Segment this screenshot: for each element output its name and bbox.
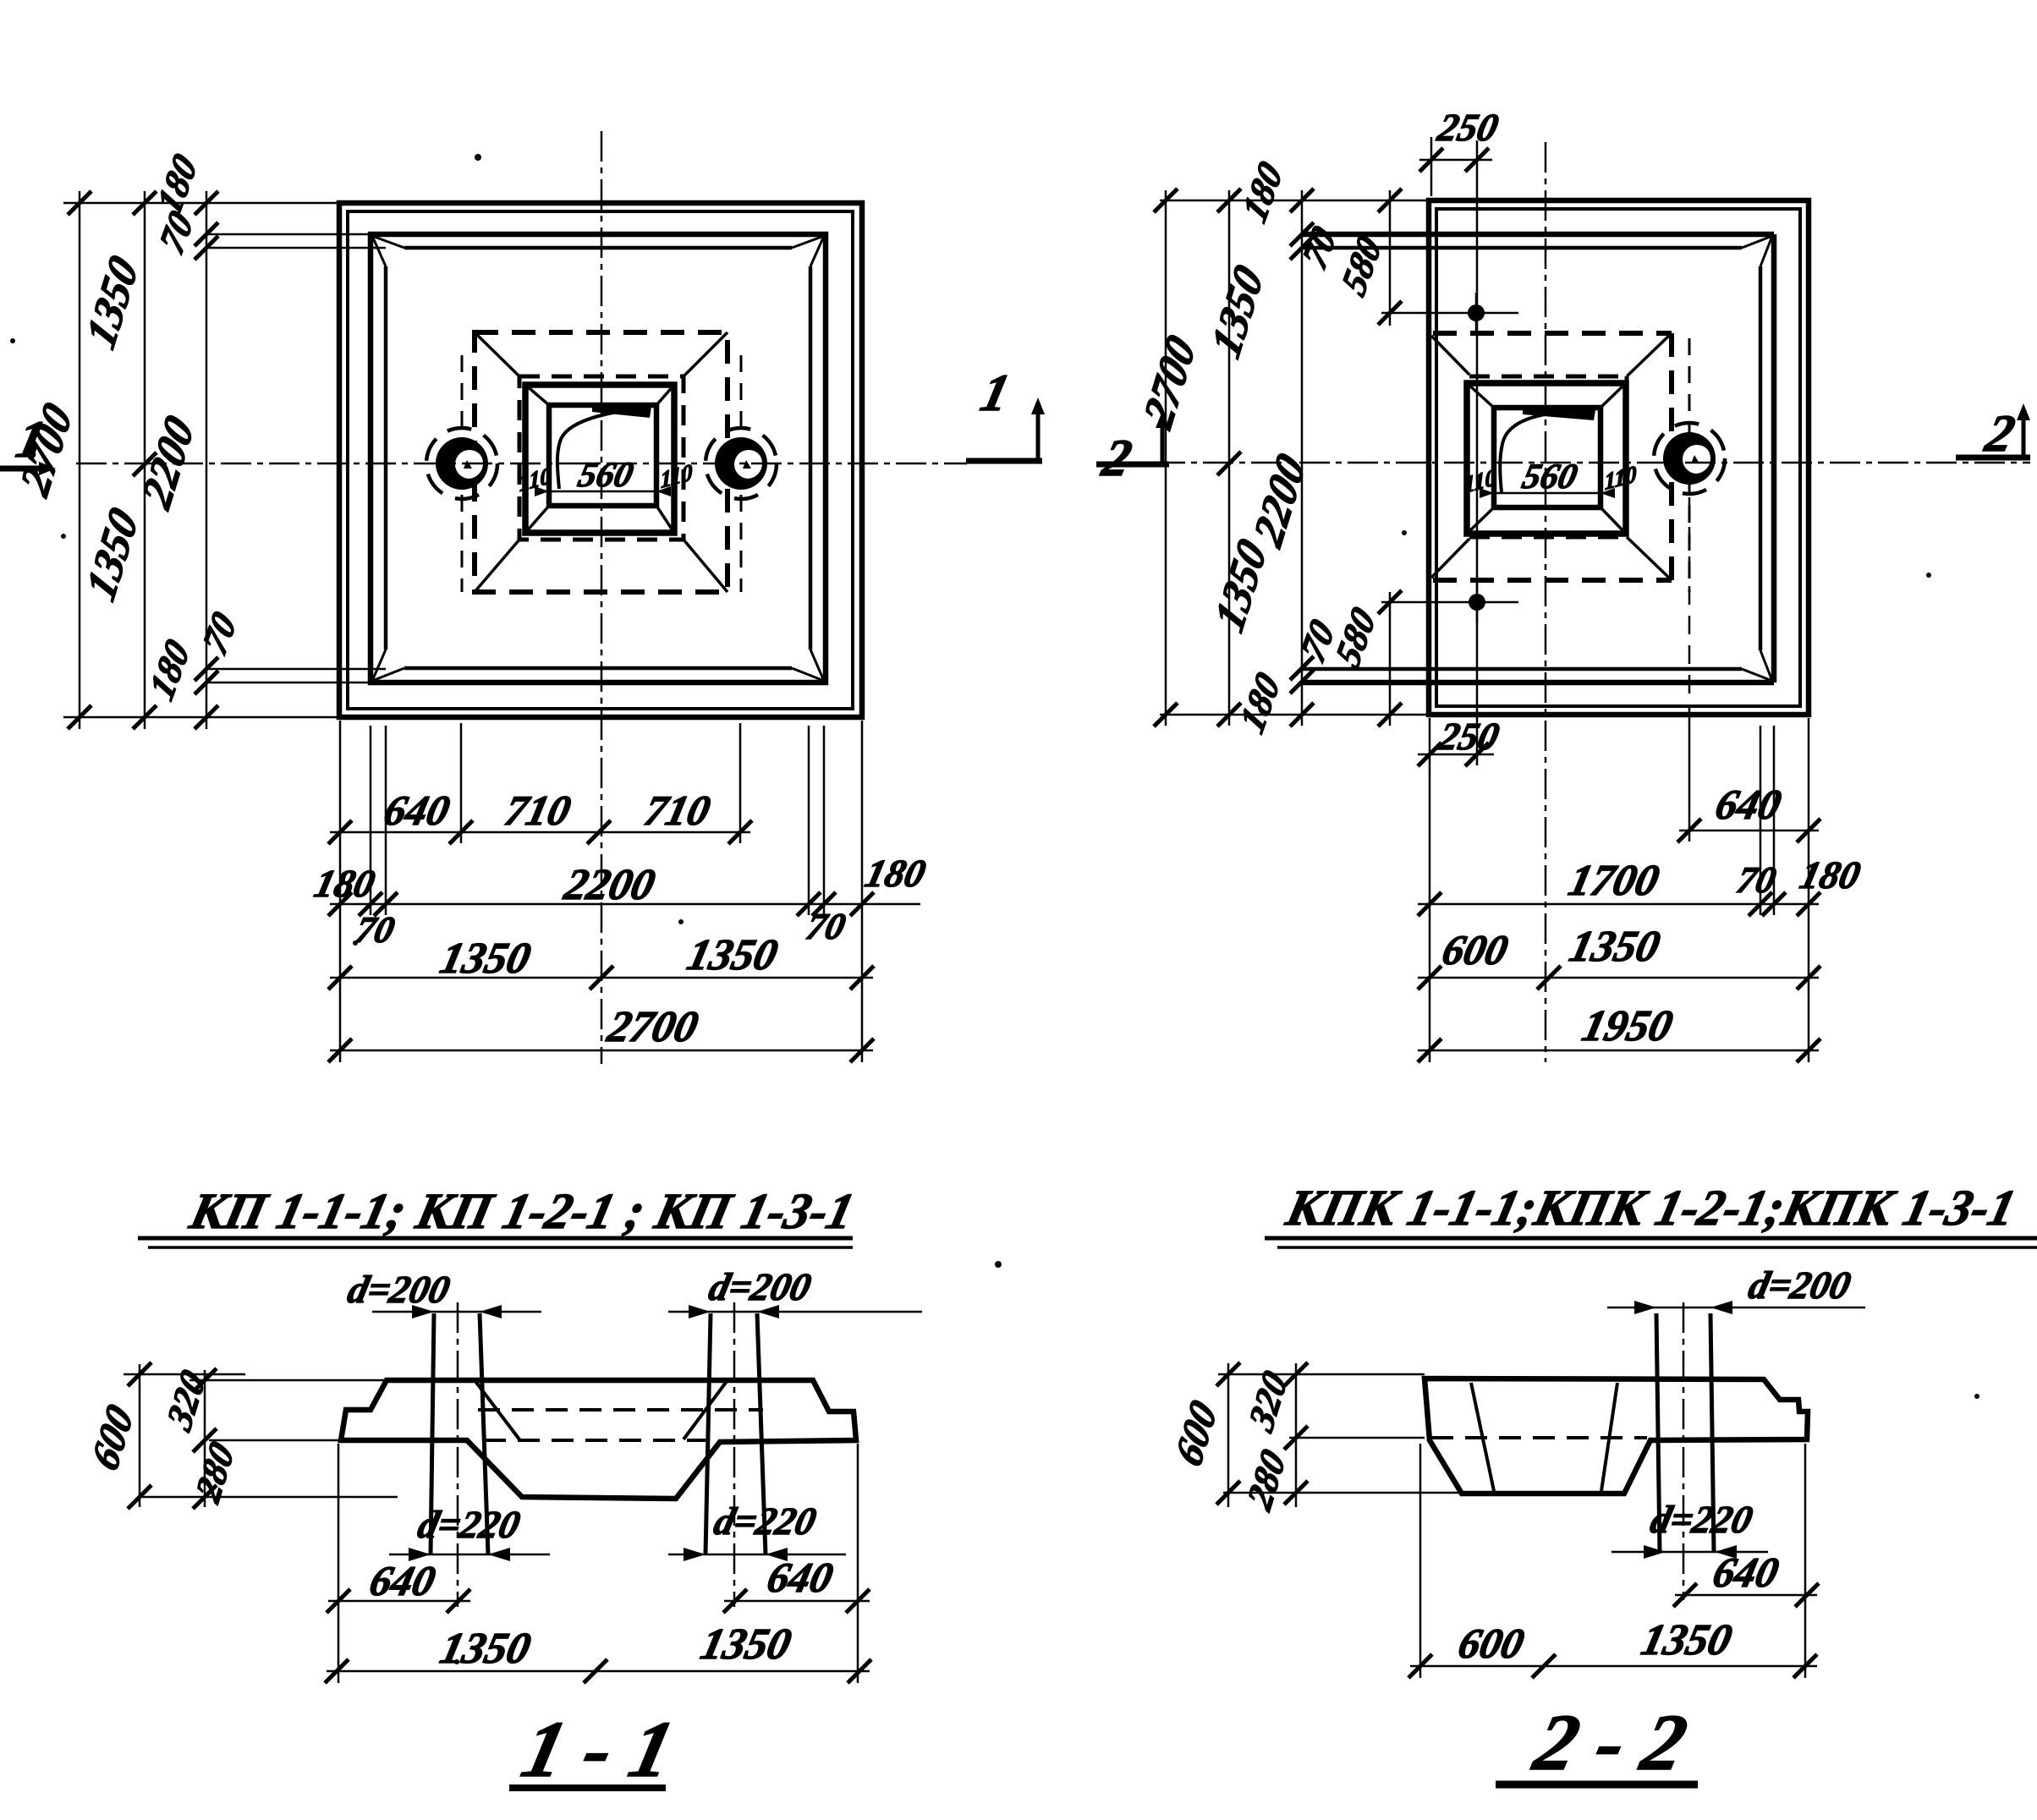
svg-text:d=200: d=200 — [343, 1269, 453, 1312]
svg-text:180: 180 — [861, 852, 930, 896]
svg-text:640: 640 — [763, 1554, 837, 1601]
svg-text:640: 640 — [1711, 781, 1786, 828]
svg-text:2 - 2: 2 - 2 — [1525, 1697, 1694, 1787]
svg-text:250: 250 — [1434, 715, 1503, 759]
svg-text:710: 710 — [501, 787, 575, 834]
svg-text:180: 180 — [310, 863, 379, 906]
svg-text:d=200: d=200 — [705, 1266, 815, 1309]
svg-text:250: 250 — [1433, 107, 1502, 150]
svg-text:d=220: d=220 — [710, 1500, 820, 1543]
svg-text:КПК 1-1-1;КПК 1-2-1;КПК 1-3-1: КПК 1-1-1;КПК 1-2-1;КПК 1-3-1 — [1281, 1181, 2021, 1236]
svg-text:d=220: d=220 — [414, 1504, 524, 1547]
svg-text:1950: 1950 — [1578, 1002, 1677, 1050]
svg-text:710: 710 — [640, 787, 715, 834]
svg-text:1350: 1350 — [1637, 1616, 1736, 1664]
svg-text:d=200: d=200 — [1744, 1264, 1854, 1307]
svg-text:КП 1-1-1; КП 1-2-1 ; КП 1-3-1: КП 1-1-1; КП 1-2-1 ; КП 1-3-1 — [184, 1184, 859, 1240]
svg-text:640: 640 — [1709, 1549, 1783, 1596]
svg-text:1 - 1: 1 - 1 — [514, 1704, 683, 1794]
svg-text:1700: 1700 — [1564, 857, 1663, 905]
svg-text:1350: 1350 — [436, 1625, 535, 1673]
svg-text:180: 180 — [1796, 854, 1864, 897]
svg-text:640: 640 — [380, 787, 454, 834]
svg-text:d=220: d=220 — [1646, 1499, 1756, 1542]
svg-text:560: 560 — [574, 455, 637, 494]
svg-text:600: 600 — [1438, 927, 1513, 973]
svg-text:1350: 1350 — [1565, 923, 1664, 971]
svg-text:2200: 2200 — [559, 861, 659, 909]
svg-text:640: 640 — [365, 1558, 440, 1604]
svg-text:1350: 1350 — [683, 931, 782, 979]
svg-text:600: 600 — [1454, 1620, 1529, 1667]
svg-text:2700: 2700 — [602, 1003, 702, 1051]
svg-text:1350: 1350 — [436, 935, 535, 983]
svg-text:1350: 1350 — [696, 1620, 795, 1669]
